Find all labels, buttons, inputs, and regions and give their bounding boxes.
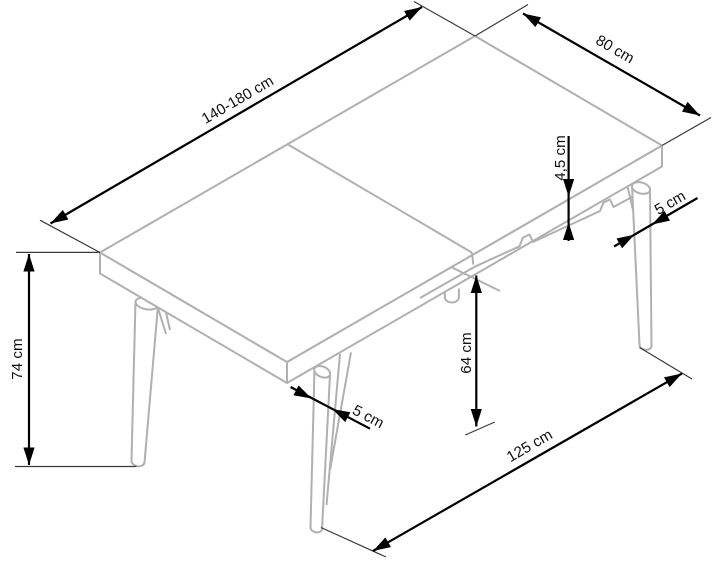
svg-text:74 cm: 74 cm (9, 338, 26, 379)
svg-text:4,5 cm: 4,5 cm (552, 135, 569, 181)
svg-text:64 cm: 64 cm (458, 332, 475, 373)
